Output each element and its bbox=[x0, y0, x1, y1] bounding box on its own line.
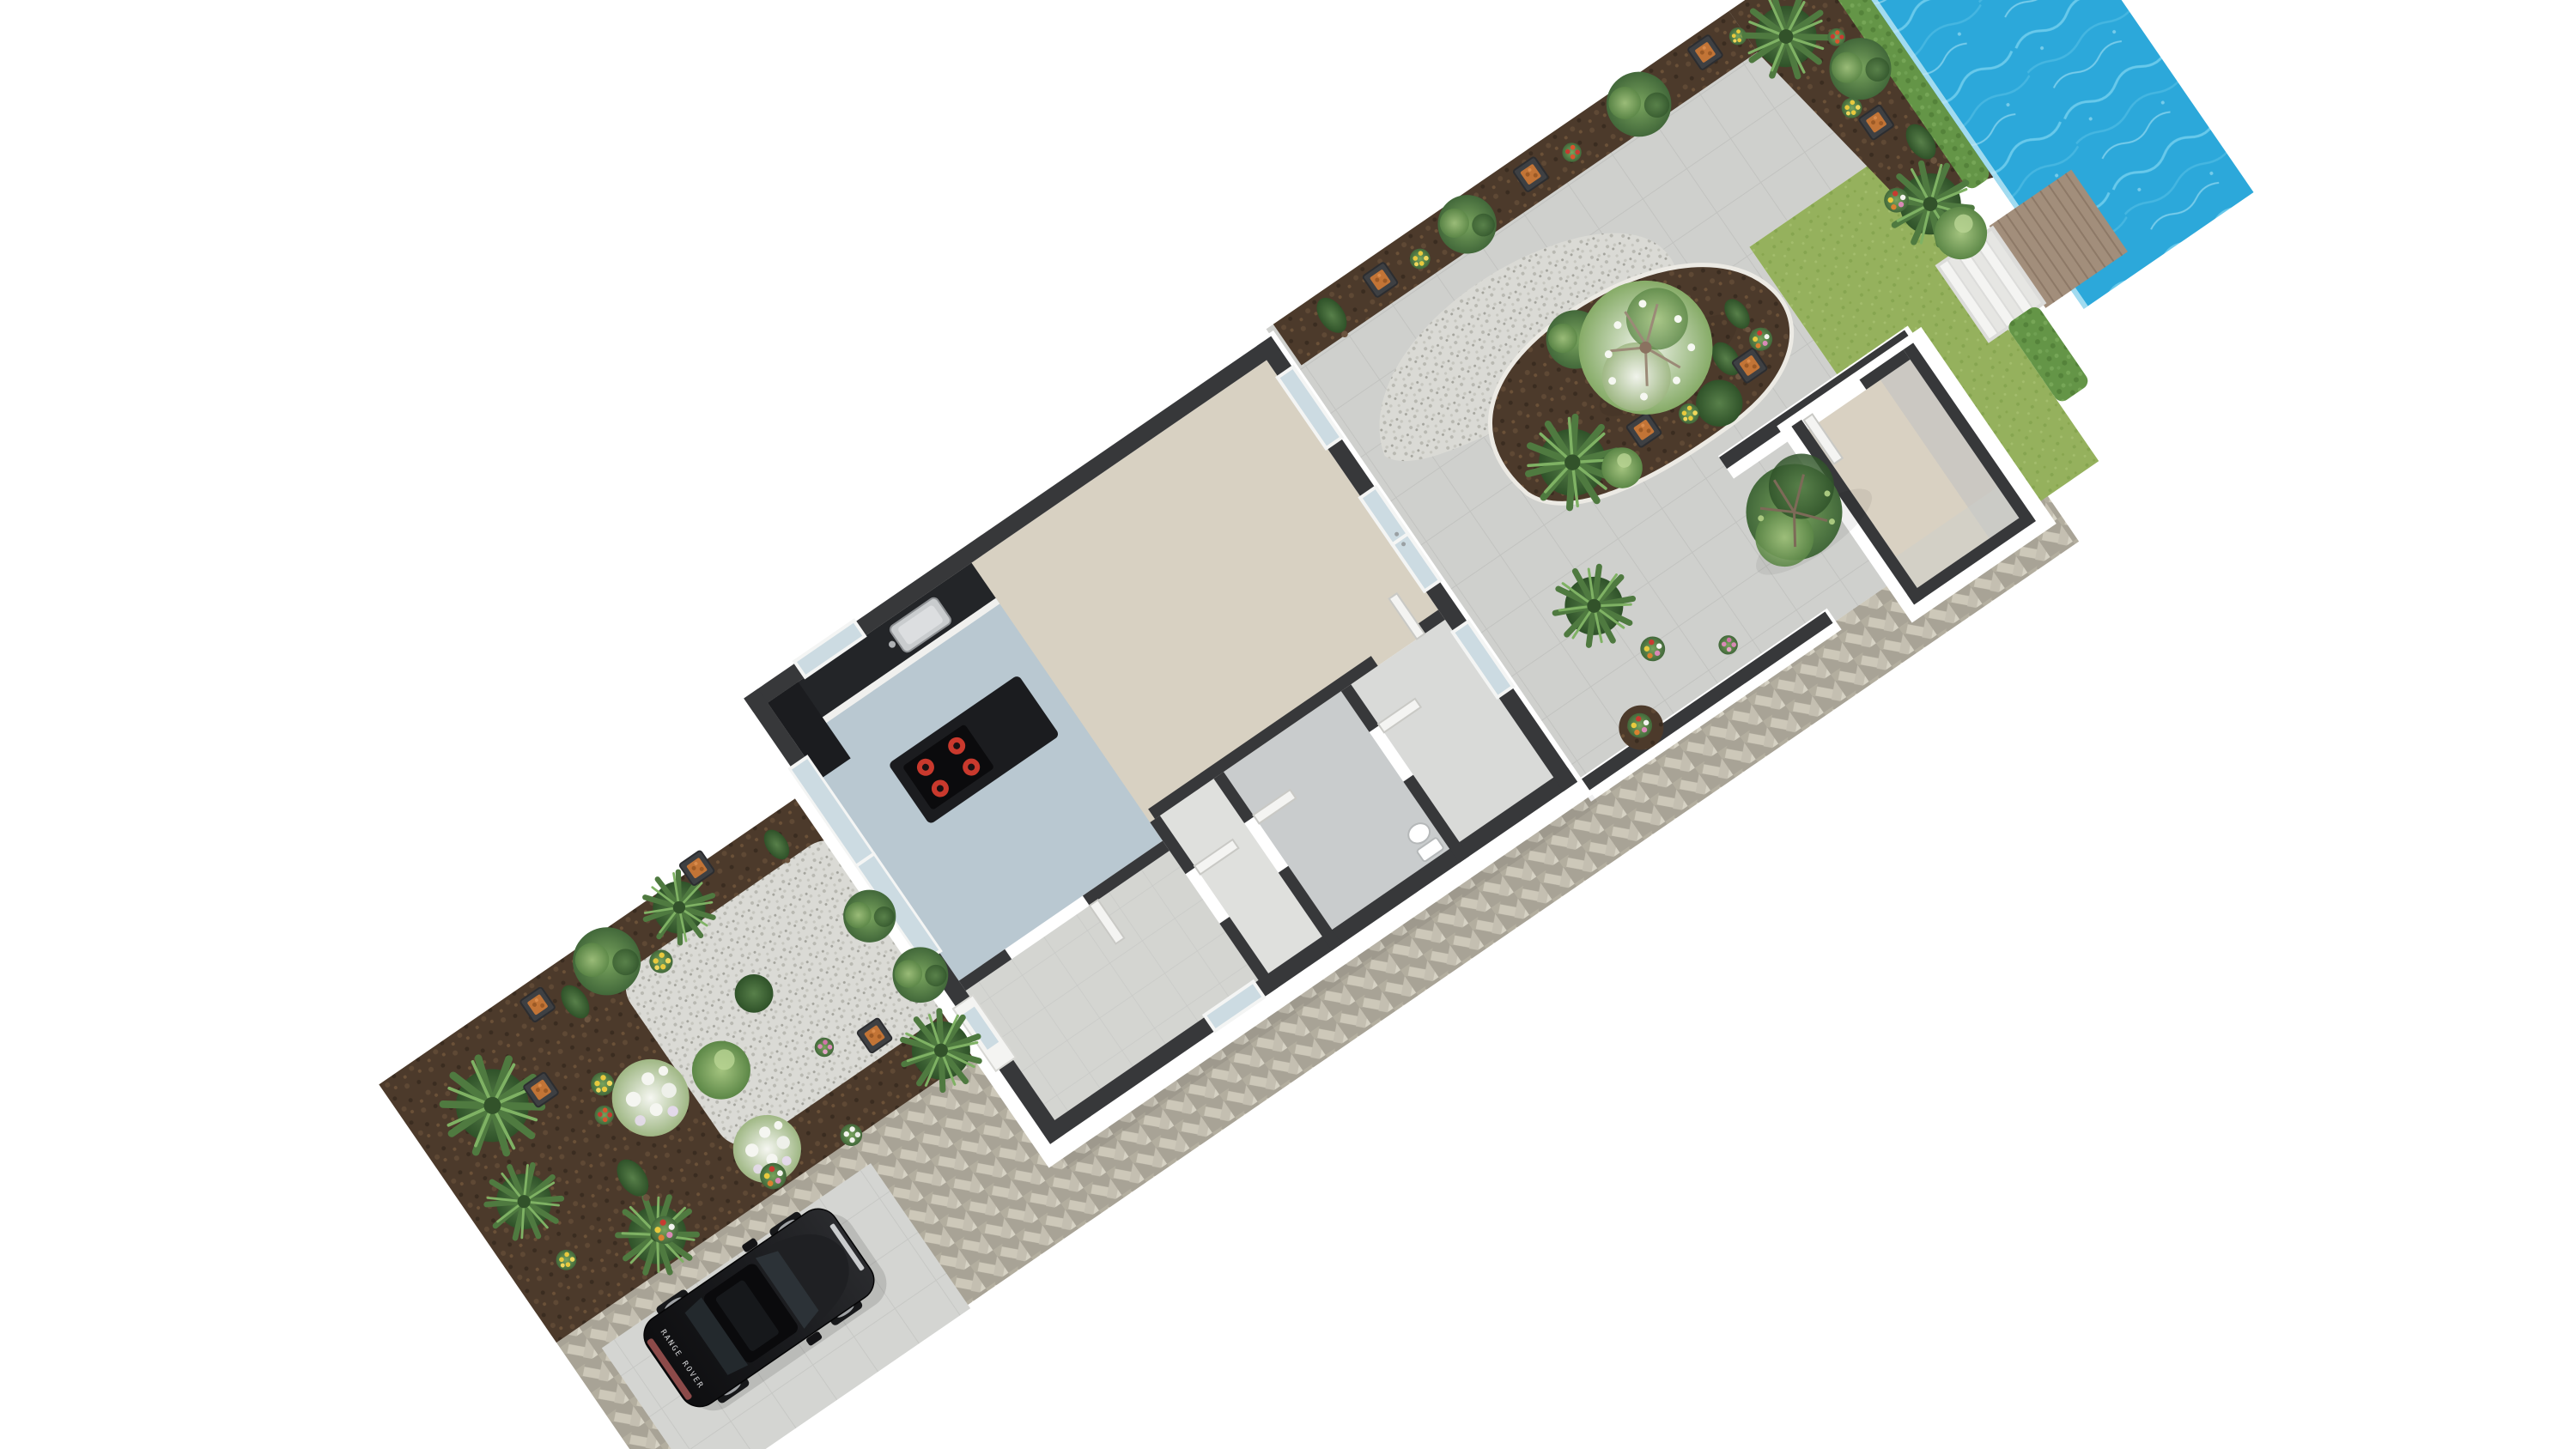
floorplan-render: RANGE ROVER bbox=[0, 0, 2576, 1449]
